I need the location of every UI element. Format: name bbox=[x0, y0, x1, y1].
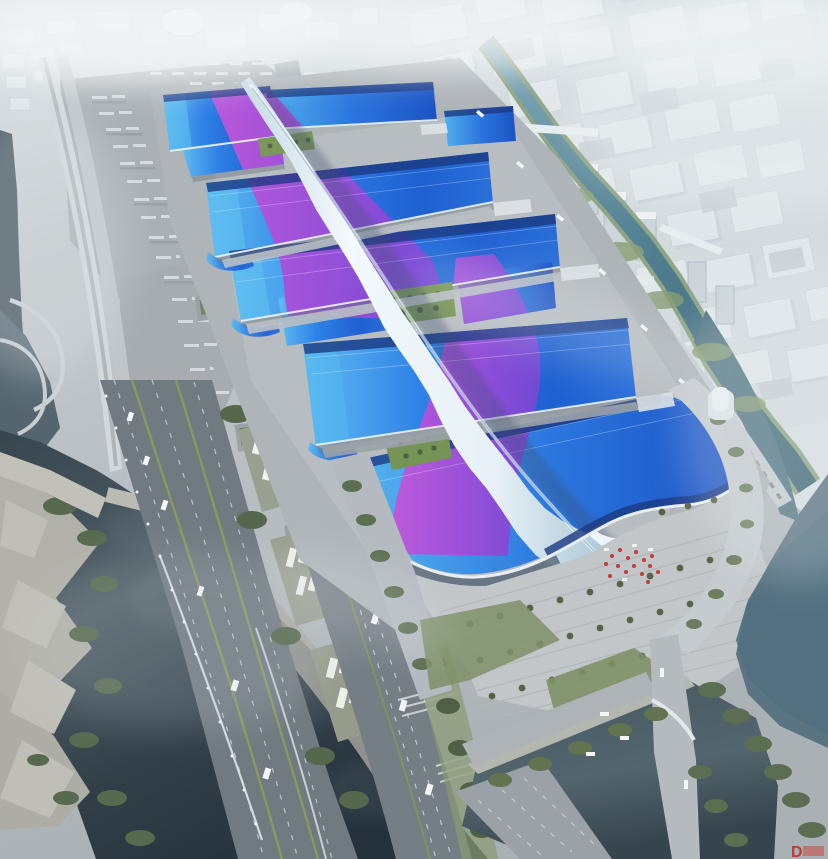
svg-text:D: D bbox=[791, 844, 803, 859]
